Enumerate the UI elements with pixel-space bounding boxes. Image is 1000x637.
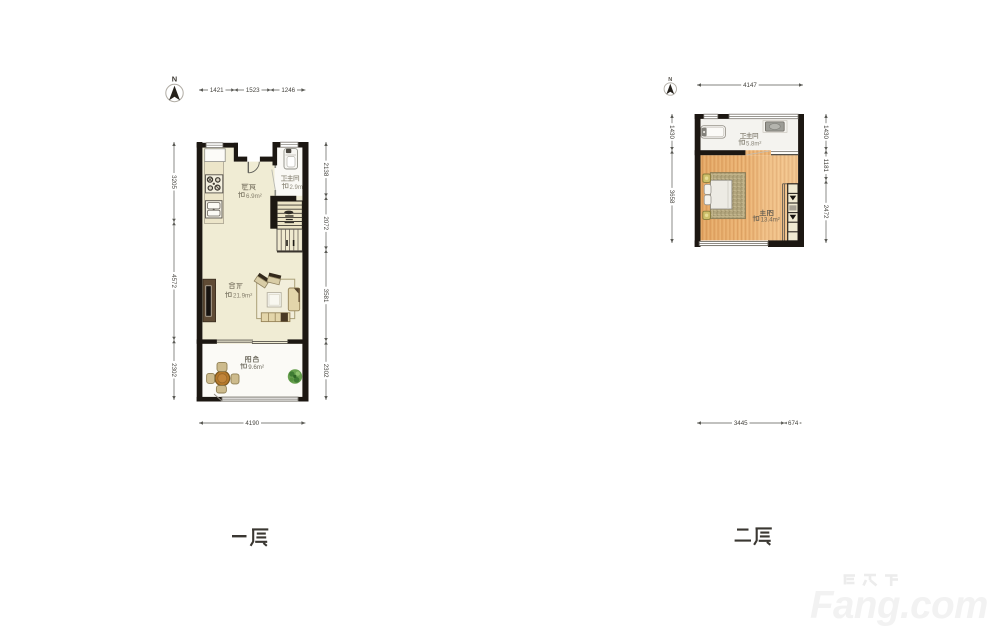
- svg-text:3445: 3445: [734, 420, 748, 427]
- svg-text:2302: 2302: [322, 364, 329, 378]
- svg-text:Fang.com: Fang.com: [810, 584, 988, 627]
- svg-text:1421: 1421: [210, 87, 224, 94]
- svg-text:4190: 4190: [245, 420, 259, 427]
- svg-text:2472: 2472: [822, 205, 829, 219]
- svg-text:2138: 2138: [322, 163, 329, 177]
- svg-text:5.8m²: 5.8m²: [746, 141, 761, 147]
- svg-text:21.9m²: 21.9m²: [233, 293, 252, 300]
- svg-text:N: N: [172, 75, 177, 84]
- svg-text:9.6m²: 9.6m²: [248, 364, 264, 371]
- svg-text:3581: 3581: [322, 289, 329, 303]
- svg-text:3205: 3205: [170, 175, 177, 189]
- svg-text:674: 674: [788, 420, 799, 427]
- svg-text:3658: 3658: [668, 190, 675, 204]
- svg-text:13.4m²: 13.4m²: [761, 216, 780, 223]
- svg-text:1246: 1246: [281, 87, 295, 94]
- svg-text:1430: 1430: [822, 125, 829, 139]
- svg-text:2072: 2072: [322, 216, 329, 230]
- svg-text:4147: 4147: [743, 82, 757, 89]
- svg-text:1523: 1523: [246, 87, 260, 94]
- svg-text:6.9m²: 6.9m²: [246, 193, 262, 200]
- svg-text:N: N: [668, 77, 672, 83]
- svg-text:4572: 4572: [170, 274, 177, 288]
- svg-text:1430: 1430: [668, 125, 675, 139]
- svg-text:2302: 2302: [170, 363, 177, 377]
- svg-text:1181: 1181: [822, 159, 829, 173]
